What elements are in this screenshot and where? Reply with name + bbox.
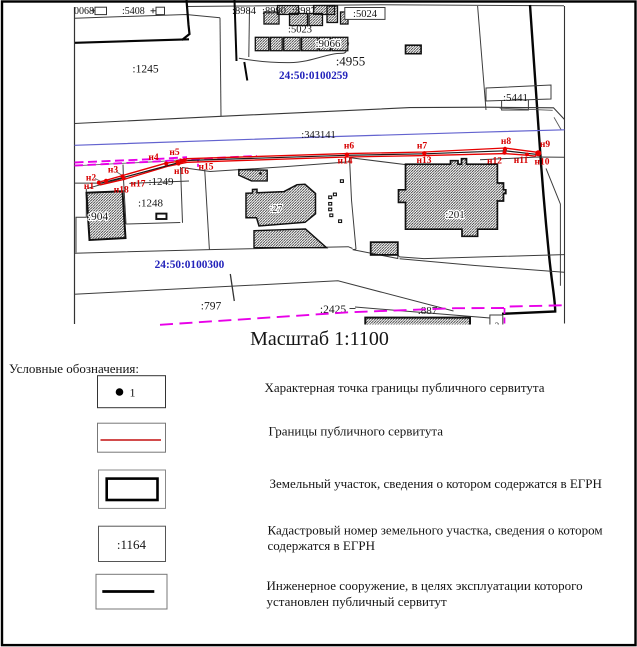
svg-text:н5: н5 — [169, 148, 179, 158]
svg-text:Условные обозначения:: Условные обозначения: — [9, 361, 139, 376]
svg-text:содержатся в ЕГРН: содержатся в ЕГРН — [268, 538, 376, 553]
svg-text:н8: н8 — [501, 137, 511, 147]
svg-text::1245: :1245 — [132, 64, 158, 76]
svg-text:установлен публичный сервитут: установлен публичный сервитут — [267, 594, 448, 609]
svg-text:Границы публичного сервитута: Границы публичного сервитута — [269, 424, 444, 439]
svg-text:н7: н7 — [417, 142, 427, 152]
svg-text::5024: :5024 — [353, 9, 378, 20]
svg-text::201: :201 — [445, 209, 465, 221]
svg-text:Инженерное сооружение, в целях: Инженерное сооружение, в целях эксплуата… — [267, 578, 583, 593]
svg-text:н17: н17 — [131, 180, 146, 190]
svg-text:н3: н3 — [108, 166, 118, 176]
svg-text:н16: н16 — [174, 167, 189, 177]
svg-text:н11: н11 — [514, 156, 529, 166]
svg-text:24:50:0100300: 24:50:0100300 — [155, 259, 225, 271]
svg-text:н9: н9 — [540, 140, 550, 150]
svg-text:Характерная точка границы публ: Характерная точка границы публичного сер… — [265, 380, 545, 395]
svg-text::1248: :1248 — [138, 198, 164, 210]
svg-text::9066: :9066 — [315, 38, 341, 50]
svg-text:Земельный участок, сведения о: Земельный участок, сведения о котором со… — [270, 476, 602, 491]
svg-text::904: :904 — [88, 211, 109, 223]
svg-text:н14: н14 — [338, 157, 353, 167]
svg-text::5441: :5441 — [503, 92, 528, 104]
svg-text:н4: н4 — [148, 153, 158, 163]
svg-text:н12: н12 — [487, 157, 502, 167]
svg-text:н15: н15 — [199, 163, 214, 173]
svg-text::887: :887 — [418, 305, 438, 317]
svg-text::1249: :1249 — [148, 176, 174, 188]
svg-text:н6: н6 — [344, 142, 354, 152]
svg-text:24:50:0100259: 24:50:0100259 — [279, 70, 348, 82]
svg-text:н18: н18 — [114, 186, 129, 196]
svg-text:1: 1 — [130, 386, 136, 400]
svg-text::1164: :1164 — [117, 537, 147, 552]
svg-text::5408: :5408 — [122, 6, 145, 17]
svg-text:0068: 0068 — [74, 6, 94, 17]
svg-text:н2: н2 — [86, 174, 96, 184]
svg-text:н10: н10 — [535, 158, 550, 168]
svg-text::343141: :343141 — [301, 130, 335, 141]
svg-text:Масштаб 1:1100: Масштаб 1:1100 — [250, 328, 389, 350]
svg-text:н13: н13 — [417, 156, 432, 166]
svg-text::797: :797 — [201, 301, 222, 313]
svg-text::5023: :5023 — [288, 25, 312, 36]
svg-text:н1: н1 — [84, 182, 94, 192]
svg-text::27: :27 — [270, 204, 283, 215]
svg-text::8984: :8984 — [232, 6, 257, 17]
svg-text:Кадастровый номер земельного у: Кадастровый номер земельного участка, св… — [268, 523, 603, 538]
svg-text::4955: :4955 — [336, 54, 366, 69]
